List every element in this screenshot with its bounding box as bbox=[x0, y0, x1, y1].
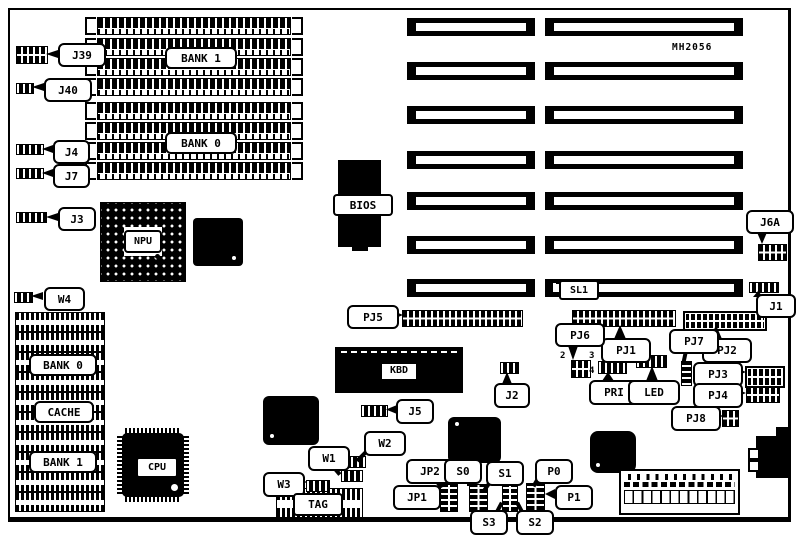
npu-label: NPU bbox=[124, 230, 162, 253]
power-connector bbox=[619, 469, 740, 515]
motherboard-diagram: MH2056 SL1 BANK 1 BANK 0 J39 J40 J4 J7 J… bbox=[0, 0, 799, 547]
callout-w4: W4 bbox=[44, 287, 85, 311]
isa-slot bbox=[545, 236, 743, 254]
bios-label: BIOS bbox=[333, 194, 393, 216]
callout-s1: S1 bbox=[486, 461, 524, 486]
callout-j40: J40 bbox=[44, 78, 92, 102]
cpu-package: CPU bbox=[117, 428, 189, 502]
isa-slot bbox=[545, 62, 743, 80]
memory-bank0-label: BANK 0 bbox=[165, 132, 237, 154]
isa-slot bbox=[407, 236, 535, 254]
callout-w2: W2 bbox=[364, 431, 406, 456]
simm-socket bbox=[85, 162, 303, 180]
callout-s2: S2 bbox=[516, 510, 554, 535]
sl1-pin1-mark bbox=[553, 283, 556, 292]
cache-label: CACHE bbox=[34, 401, 94, 423]
jumper-j40 bbox=[16, 83, 34, 94]
npu-core: NPU bbox=[124, 227, 162, 256]
part-number: MH2056 bbox=[672, 42, 712, 53]
callout-j4: J4 bbox=[53, 140, 90, 164]
callout-s0: S0 bbox=[444, 459, 482, 484]
callout-j39: J39 bbox=[58, 43, 106, 67]
header-pj2 bbox=[683, 311, 767, 331]
chip bbox=[448, 417, 501, 463]
cache-bank1-label: BANK 1 bbox=[29, 451, 97, 473]
sram-chip bbox=[15, 492, 105, 512]
callout-j2: J2 bbox=[494, 383, 530, 408]
callout-p1: P1 bbox=[555, 485, 593, 510]
callout-j3: J3 bbox=[58, 207, 96, 231]
isa-slot bbox=[407, 62, 535, 80]
jumper-j4 bbox=[16, 144, 44, 155]
cpu-label: CPU bbox=[136, 457, 178, 478]
jumper-j5 bbox=[361, 405, 388, 417]
jumper-j2 bbox=[500, 362, 519, 374]
callout-pj5: PJ5 bbox=[347, 305, 399, 329]
jumper-j39 bbox=[16, 46, 48, 64]
jumper-block-jp bbox=[440, 484, 458, 512]
callout-pj7: PJ7 bbox=[669, 329, 719, 354]
callout-jp1: JP1 bbox=[393, 485, 441, 510]
jumper-pj7 bbox=[681, 361, 692, 386]
simm-socket bbox=[85, 78, 303, 96]
jumper-j7 bbox=[16, 168, 44, 179]
jumper-block-p0p1 bbox=[526, 483, 545, 511]
sram-chip bbox=[15, 312, 105, 332]
callout-j5: J5 bbox=[396, 399, 434, 424]
jumper-w3 bbox=[306, 480, 330, 492]
keyboard-din-connector bbox=[756, 436, 791, 478]
jumper-w1 bbox=[341, 470, 363, 482]
callout-j7: J7 bbox=[53, 164, 90, 188]
slot-label-sl1: SL1 bbox=[559, 280, 599, 300]
callout-pj1: PJ1 bbox=[601, 338, 651, 363]
callout-pj6: PJ6 bbox=[555, 323, 605, 347]
isa-slot bbox=[545, 192, 743, 210]
callout-led: LED bbox=[628, 380, 680, 405]
sram-chip bbox=[15, 332, 105, 352]
jumper-j3 bbox=[16, 212, 47, 223]
jumper-block-pj3 bbox=[745, 366, 785, 388]
memory-bank1-label: BANK 1 bbox=[165, 47, 237, 69]
callout-s3: S3 bbox=[470, 510, 508, 535]
chip bbox=[193, 218, 243, 266]
chip bbox=[590, 431, 636, 473]
din-tab bbox=[748, 460, 760, 472]
isa-slot bbox=[407, 279, 535, 297]
isa-slot bbox=[545, 151, 743, 169]
callout-j1: J1 bbox=[756, 294, 796, 318]
callout-pj8: PJ8 bbox=[671, 406, 721, 431]
pj6-pin2: 2 bbox=[560, 352, 565, 361]
sram-chip bbox=[15, 472, 105, 492]
isa-slot bbox=[545, 18, 743, 36]
isa-slot bbox=[407, 18, 535, 36]
kbd-label: KBD bbox=[382, 364, 416, 379]
jumper-block-pj8 bbox=[722, 410, 739, 427]
jumper-block-s2s3 bbox=[502, 484, 518, 512]
simm-socket bbox=[85, 102, 303, 120]
chip bbox=[263, 396, 319, 445]
keyboard-din-connector-step bbox=[776, 427, 791, 438]
pj6-pin4: 4 bbox=[589, 367, 594, 376]
jumper-block-j6a bbox=[758, 244, 787, 261]
pj6-pin3: 3 bbox=[589, 352, 594, 361]
isa-slot bbox=[407, 151, 535, 169]
bios-notch bbox=[352, 247, 368, 251]
callout-j6a: J6A bbox=[746, 210, 794, 234]
jumper-block-pj4 bbox=[746, 387, 780, 403]
header-pj5 bbox=[402, 310, 523, 327]
sram-chip bbox=[15, 432, 105, 452]
isa-slot bbox=[545, 106, 743, 124]
tag-label: TAG bbox=[293, 493, 343, 516]
jumper-block-pj6 bbox=[571, 360, 591, 378]
din-tab bbox=[748, 448, 760, 460]
isa-slot bbox=[407, 106, 535, 124]
cache-bank0-label: BANK 0 bbox=[29, 354, 97, 376]
simm-socket bbox=[85, 17, 303, 35]
callout-pj4: PJ4 bbox=[693, 383, 743, 408]
npu-pin1-dot bbox=[155, 254, 160, 259]
callout-p0: P0 bbox=[535, 459, 573, 484]
jumper-j1 bbox=[749, 282, 779, 293]
callout-w1: W1 bbox=[308, 446, 350, 471]
jumper-w4 bbox=[14, 292, 33, 303]
isa-slot bbox=[407, 192, 535, 210]
